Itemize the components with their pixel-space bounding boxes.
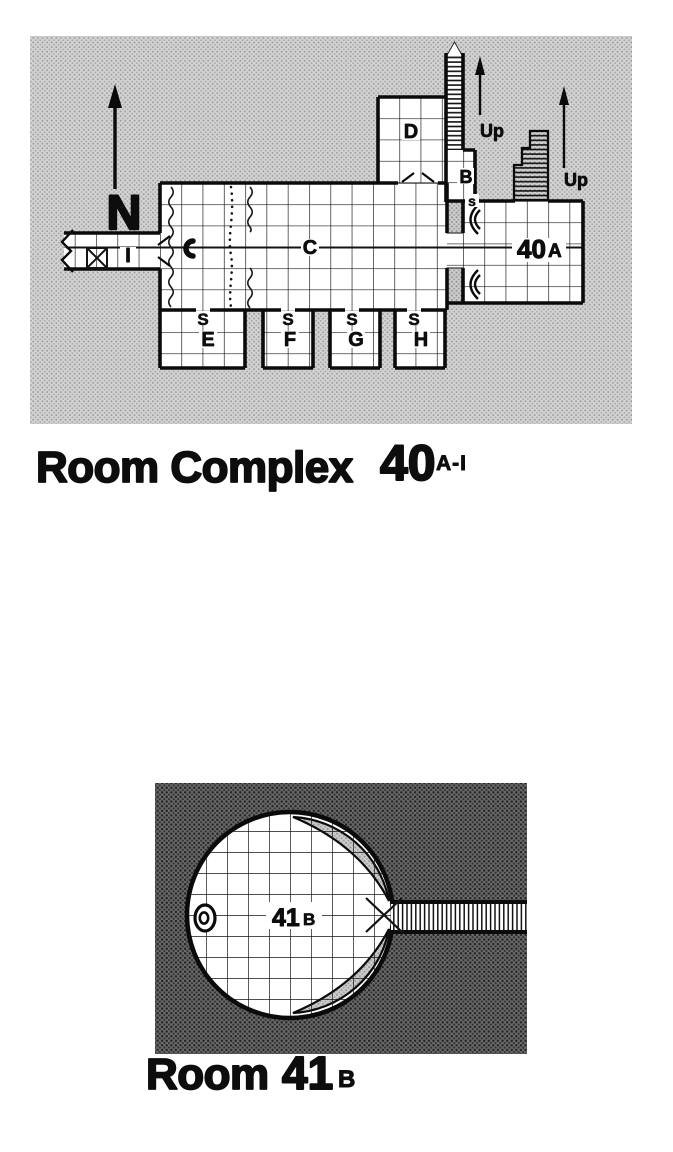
staircase-1 xyxy=(446,42,463,150)
shaded-cell-lower xyxy=(447,268,463,303)
room-f-label: F xyxy=(284,329,296,351)
secret-door-s-f: S xyxy=(282,310,293,329)
room-d-label: D xyxy=(404,121,418,143)
secret-door-s-e: S xyxy=(197,310,208,329)
room-h-label: H xyxy=(414,329,428,351)
map2-title-main: Room xyxy=(146,1050,269,1099)
map1-title: Room Complex 40 A-I xyxy=(36,435,467,492)
room-e-label: E xyxy=(201,329,214,351)
map-room-41b: 41 B Room 41 B xyxy=(146,783,527,1099)
up-label-2: Up xyxy=(564,170,588,190)
secret-door-s-small: s xyxy=(468,193,476,209)
map-room-complex-40: C D B I E F G H S S S S s 40 A N Up Up xyxy=(30,36,632,492)
room-b-label: B xyxy=(460,167,473,187)
room-g-label: G xyxy=(348,329,364,351)
room-41b-letter: B xyxy=(303,910,315,929)
up-label-1: Up xyxy=(480,121,504,141)
room-i-label: I xyxy=(125,245,131,267)
room-41b-number: 41 xyxy=(272,904,300,932)
map2-title-number: 41 xyxy=(282,1047,333,1099)
scanned-map-page: C D B I E F G H S S S S s 40 A N Up Up xyxy=(0,0,673,1152)
shaded-cell-upper xyxy=(447,201,463,233)
dungeon-maps: C D B I E F G H S S S S s 40 A N Up Up xyxy=(0,0,673,1152)
compass-n-label: N xyxy=(107,187,142,240)
map2-title: Room 41 B xyxy=(146,1047,355,1099)
room-c-label: C xyxy=(303,237,317,259)
map1-title-main: Room Complex xyxy=(36,443,354,492)
secret-door-s-h: S xyxy=(408,310,419,329)
map2-title-sub: B xyxy=(338,1066,355,1093)
map1-title-range: A-I xyxy=(436,452,467,475)
secret-door-s-g: S xyxy=(346,310,357,329)
map1-title-number: 40 xyxy=(380,435,436,491)
stair-corridor xyxy=(391,902,527,932)
room-40a-letter: A xyxy=(548,241,562,262)
well-symbol xyxy=(195,905,215,931)
room-40a-number: 40 xyxy=(517,234,546,264)
